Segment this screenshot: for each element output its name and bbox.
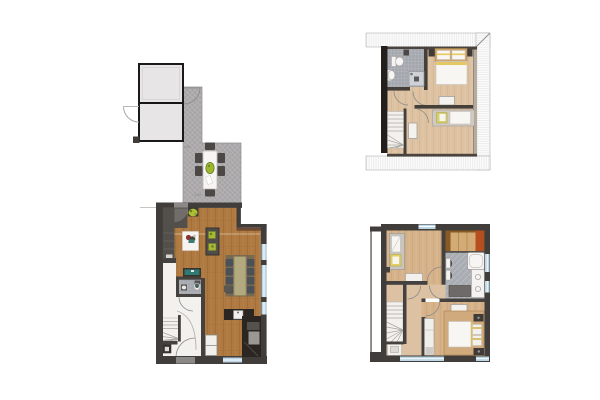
svg-text:2.80: 2.80 (194, 193, 201, 197)
svg-text:4.80: 4.80 (184, 145, 191, 149)
